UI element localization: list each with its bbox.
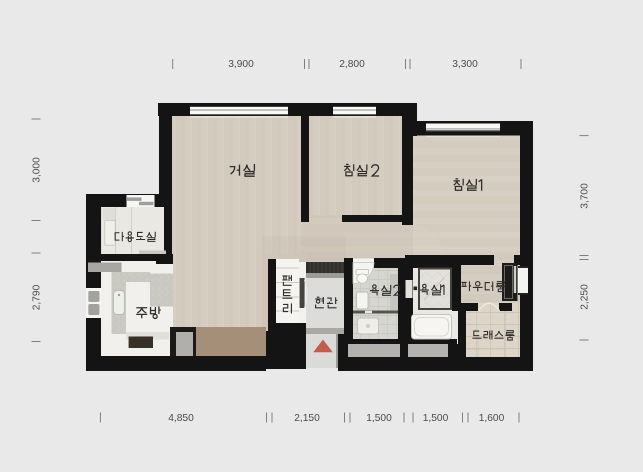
svg-text:4,850: 4,850 bbox=[168, 413, 194, 424]
svg-text:1,500: 1,500 bbox=[423, 413, 449, 424]
svg-text:2,150: 2,150 bbox=[294, 413, 320, 424]
svg-text:1,500: 1,500 bbox=[366, 413, 392, 424]
svg-text:2,800: 2,800 bbox=[339, 59, 365, 70]
svg-text:3,900: 3,900 bbox=[228, 59, 254, 70]
svg-text:2,250: 2,250 bbox=[580, 284, 591, 310]
svg-text:1,600: 1,600 bbox=[479, 413, 505, 424]
svg-text:3,000: 3,000 bbox=[32, 157, 43, 183]
svg-text:3,300: 3,300 bbox=[452, 59, 478, 70]
svg-text:3,700: 3,700 bbox=[580, 183, 591, 209]
svg-text:2,790: 2,790 bbox=[32, 284, 43, 310]
